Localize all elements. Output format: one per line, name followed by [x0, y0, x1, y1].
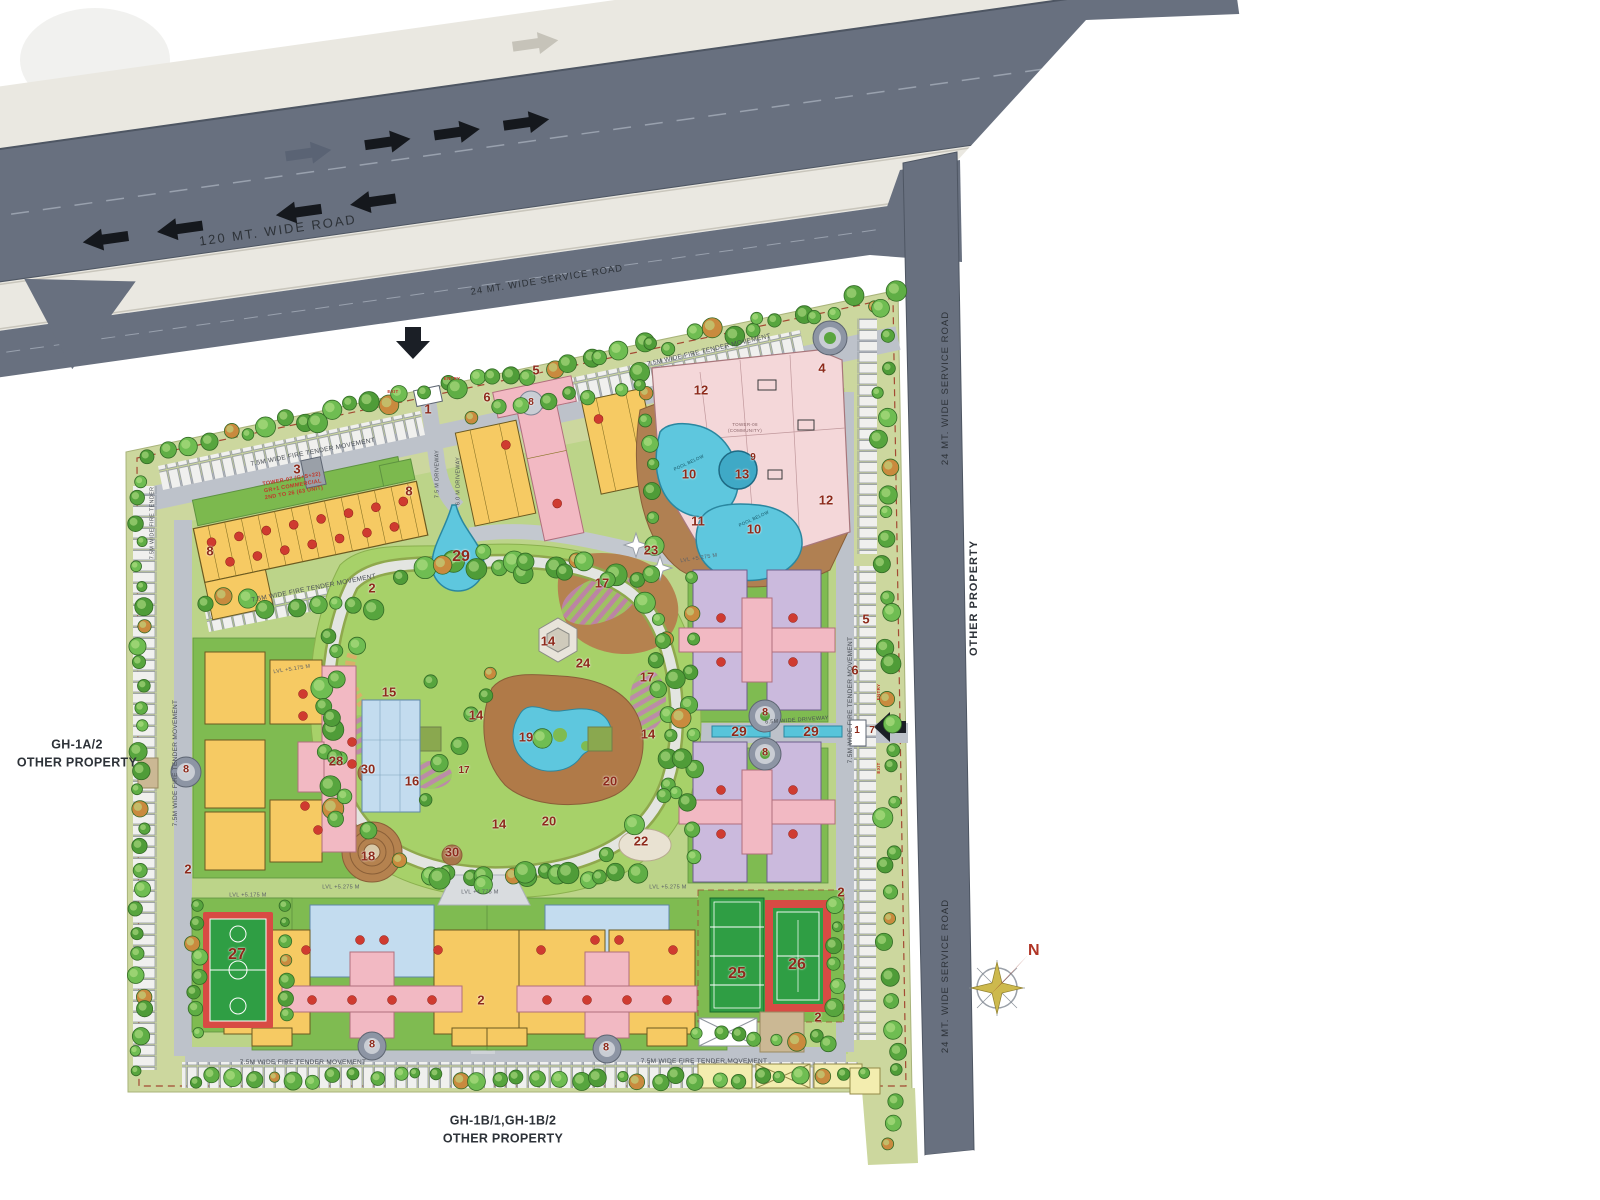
basketball-court [203, 912, 273, 1028]
tennis-court [765, 900, 831, 1012]
badminton-courts [710, 898, 764, 1012]
playground [619, 829, 671, 861]
community-building [636, 350, 850, 587]
side-entry-gate [850, 720, 866, 746]
entry-arrow-down [396, 327, 430, 359]
plan-drawing [0, 0, 1600, 1200]
pond [484, 675, 643, 805]
background-mask [892, 0, 1600, 1200]
site-master-plan: GH-1A/2 OTHER PROPERTY GH-1B/1,GH-1B/2 O… [0, 0, 1600, 1200]
water-channel [784, 726, 842, 737]
